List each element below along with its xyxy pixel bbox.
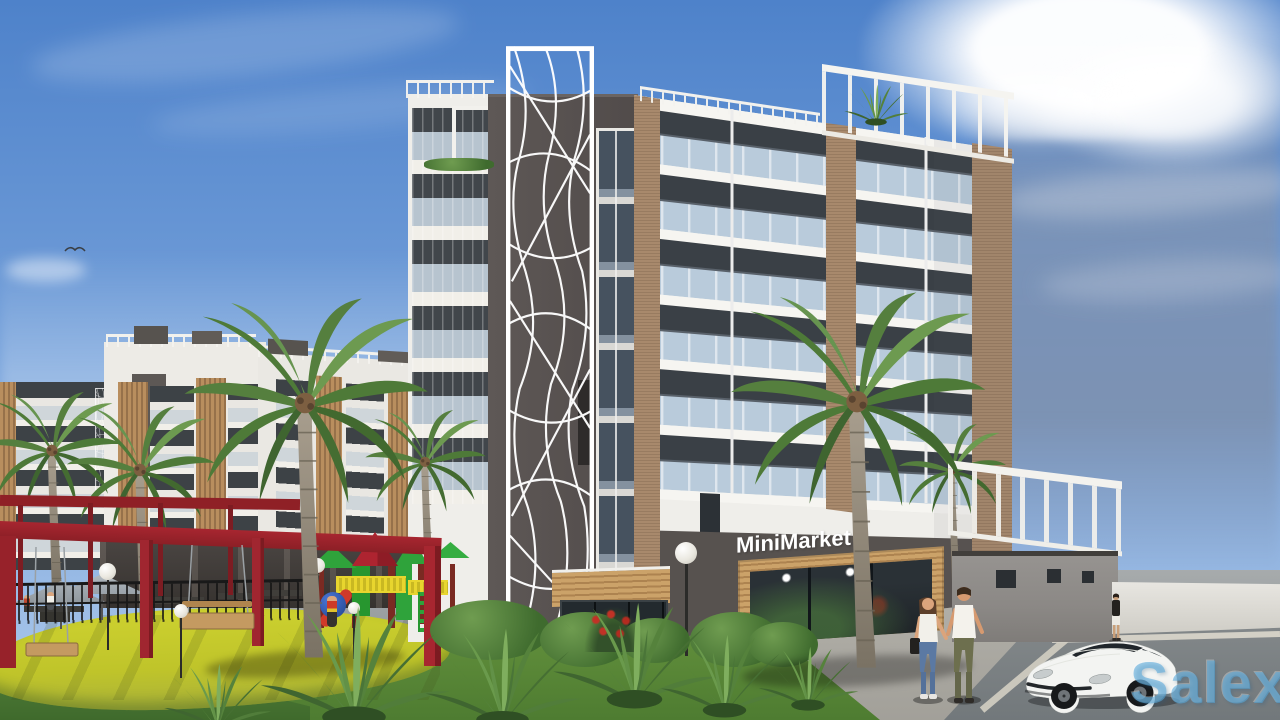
balcony-hedge — [424, 158, 494, 171]
agave-clump-5 — [752, 636, 864, 718]
pergola-front-post — [0, 536, 16, 668]
street-lamp-2 — [99, 563, 116, 650]
agave-clump-6 — [138, 660, 296, 720]
annex-window — [996, 570, 1016, 588]
salexy-watermark: Salexy — [1130, 650, 1280, 717]
glass-strip-mullion — [615, 131, 617, 636]
building-b-roof-box — [134, 326, 168, 344]
rooftop-plants — [840, 80, 912, 128]
annex-window-2 — [1047, 569, 1061, 583]
annex-window-3 — [1082, 571, 1094, 583]
bird — [64, 244, 86, 254]
walking-man — [942, 584, 986, 706]
architectural-render-scene: MiniMarket — [0, 0, 1280, 720]
left-wing-roof-rail — [406, 80, 494, 98]
decorative-lattice-tower — [506, 42, 594, 638]
